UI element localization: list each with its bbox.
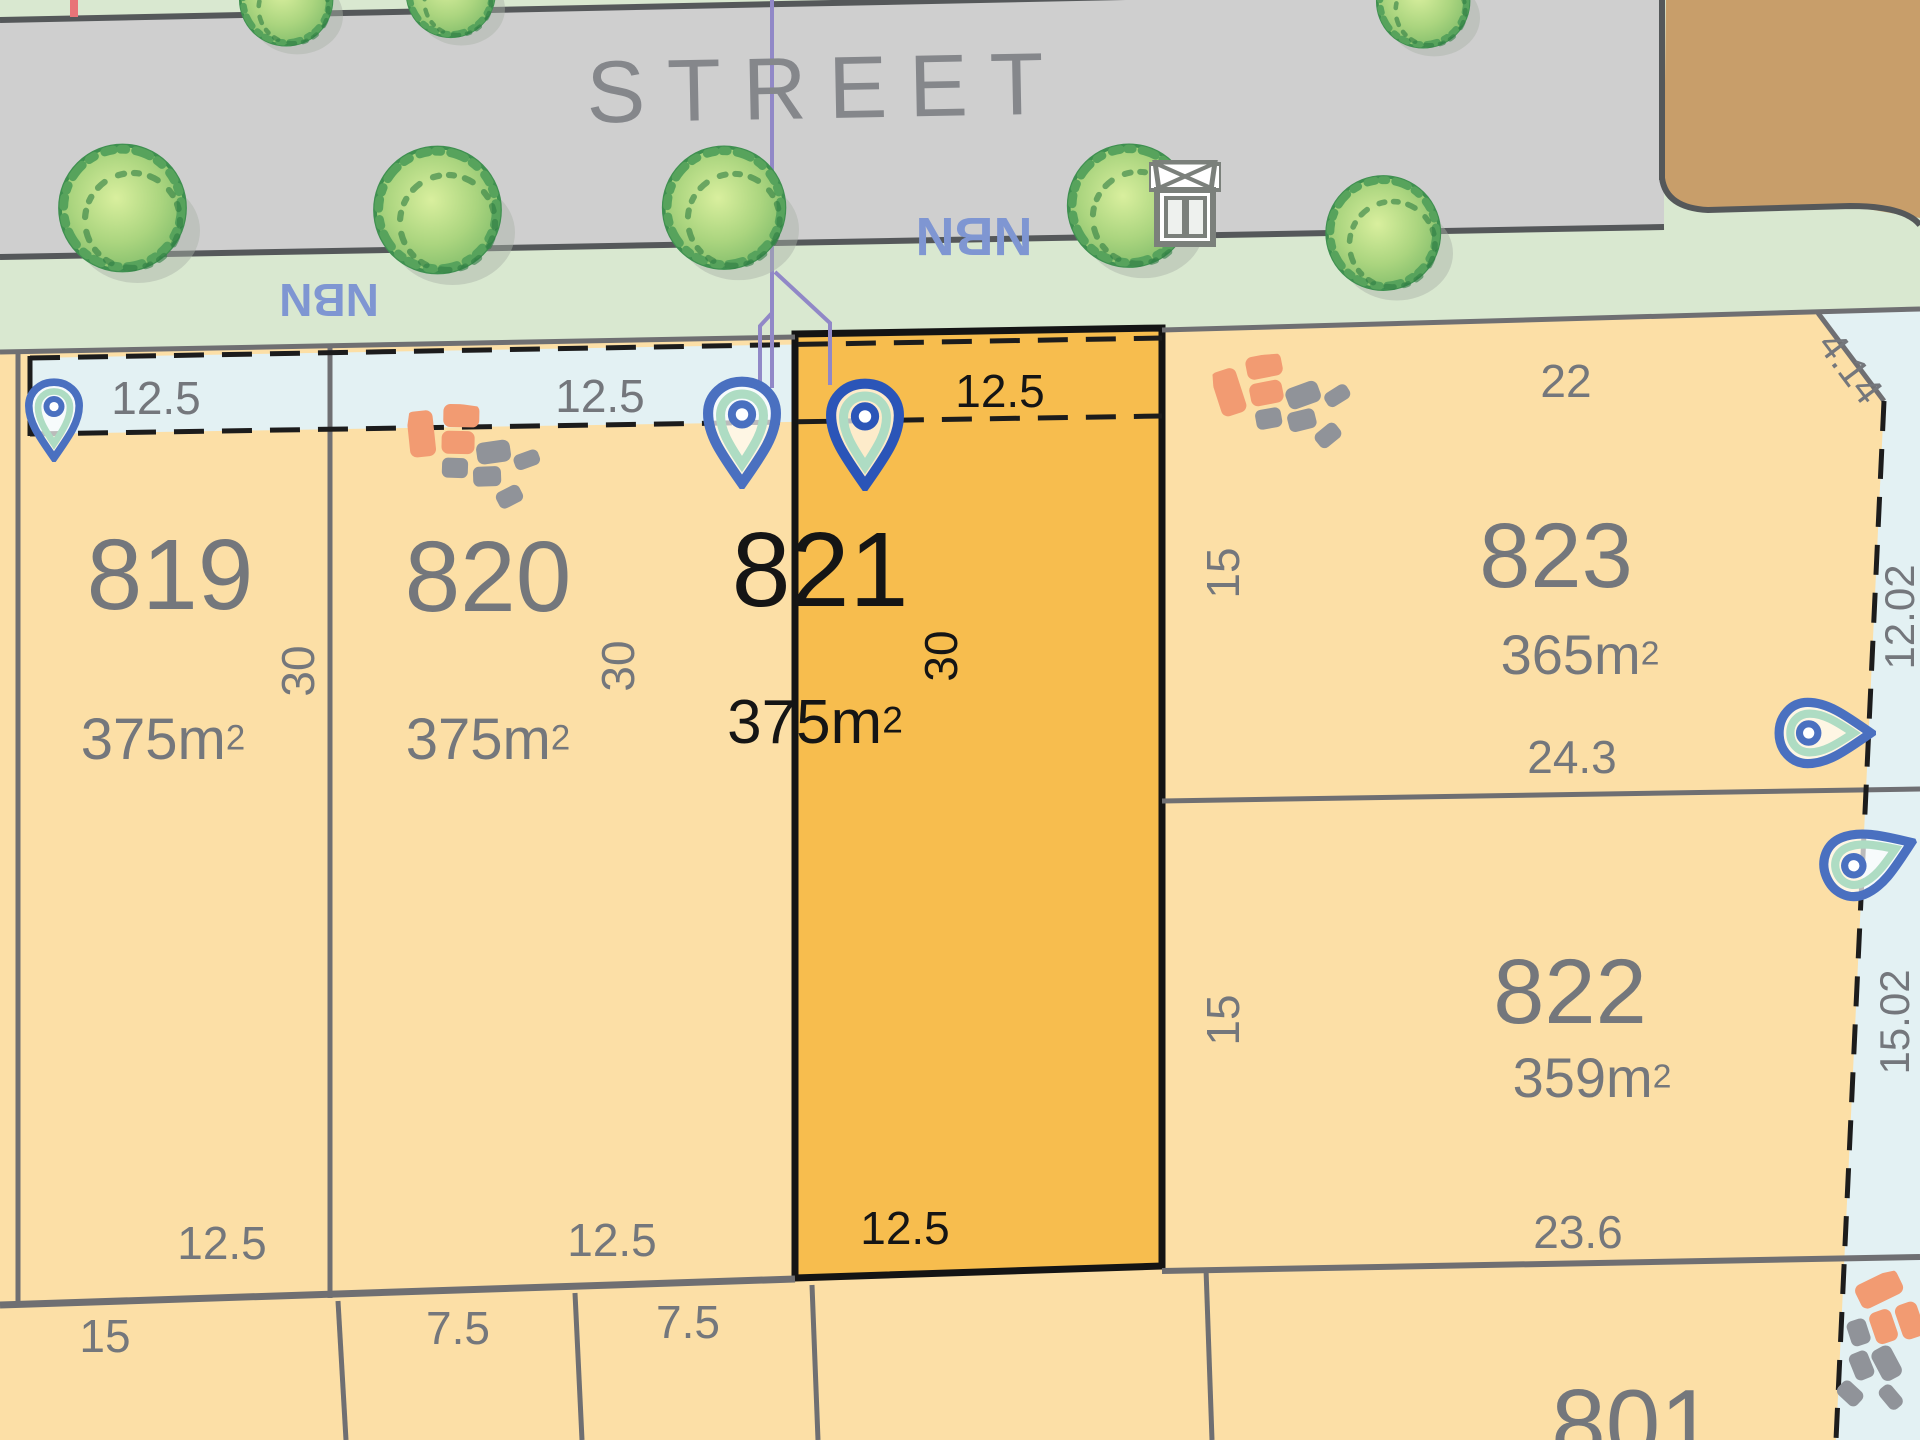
lot-819-area: 375m2 [81, 711, 245, 769]
lot-821-depth-dim: 30 [918, 630, 964, 681]
lot-823-number: 823 [1479, 510, 1633, 602]
lot-822-rear-dim: 23.6 [1533, 1209, 1623, 1255]
lot-819-area-sup: 2 [226, 718, 245, 757]
lot-822-area-sup: 2 [1653, 1059, 1672, 1096]
right-easement-dim-bottom: 15.02 [1874, 969, 1916, 1074]
lot-820-number: 820 [405, 527, 572, 627]
lot-823-area-base: 365m [1501, 623, 1641, 686]
lot-823-area-sup: 2 [1641, 636, 1660, 673]
lot-801-number: 801 [1551, 1375, 1715, 1440]
right-easement-dim-top: 12.02 [1879, 564, 1920, 669]
bottom-lot-dim-7-5-b: 7.5 [656, 1299, 720, 1345]
lot-823-side-dim: 15 [1200, 547, 1246, 598]
lot-821-area-sup: 2 [882, 699, 903, 741]
lot-820-area-sup: 2 [551, 718, 570, 757]
lot-820-area: 375m2 [406, 711, 570, 769]
estate-masterplan-map: STREET NBN NBN 12.5 12.5 12.5 819 375m2 … [0, 0, 1920, 1440]
lot-822-number: 822 [1493, 946, 1647, 1038]
lot-820-area-base: 375m [406, 707, 551, 772]
lot-820-depth-dim: 30 [595, 640, 641, 691]
bottom-lot-dim-15: 15 [79, 1313, 130, 1359]
lot-819-depth-dim: 30 [275, 645, 321, 696]
lot-823-rear-dim: 24.3 [1527, 734, 1617, 780]
lot-821-frontage-dim: 12.5 [955, 368, 1045, 414]
lot-822-area-base: 359m [1513, 1046, 1653, 1109]
lot-821-number: 821 [732, 517, 909, 623]
adjacent-parcel [1664, 0, 1920, 218]
lot-822-side-dim: 15 [1200, 994, 1246, 1045]
bottom-lot-dim-7-5-a: 7.5 [426, 1305, 490, 1351]
lot-822-area: 359m2 [1513, 1050, 1672, 1106]
lot-819-number: 819 [87, 525, 254, 625]
lot-821-area: 375m2 [727, 692, 903, 754]
lot-819-area-base: 375m [81, 707, 226, 772]
lot-821-rear-dim: 12.5 [860, 1205, 950, 1251]
nbn-label-right: NBN [916, 209, 1033, 263]
lot-820-rear-dim: 12.5 [567, 1217, 657, 1263]
lot-823-frontage-dim: 22 [1540, 358, 1591, 404]
lot-819-rear-dim: 12.5 [177, 1220, 267, 1266]
lot-821-area-base: 375m [727, 688, 882, 757]
street-name-label: STREET [586, 39, 1067, 136]
nbn-pit-icon [1149, 162, 1221, 244]
lot-823-area: 365m2 [1501, 627, 1660, 683]
lot-820-frontage-dim: 12.5 [555, 373, 645, 419]
lot-819-frontage-dim: 12.5 [111, 375, 201, 421]
nbn-label-left: NBN [279, 277, 379, 323]
